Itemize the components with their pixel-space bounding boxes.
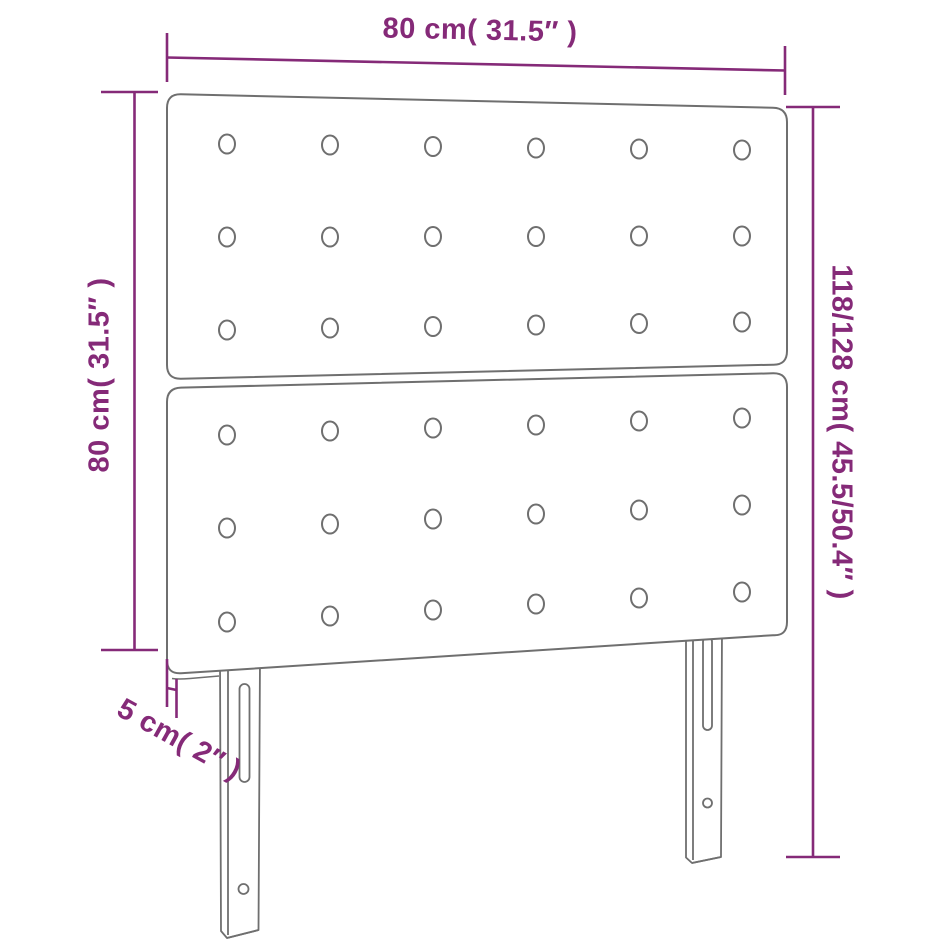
right-leg-hole bbox=[703, 799, 712, 808]
panel-height-dimension-label: 80 cm( 31.5″ ) bbox=[84, 278, 117, 473]
width-dimension-label: 80 cm( 31.5″ ) bbox=[382, 12, 578, 49]
left-leg-hole bbox=[239, 884, 249, 894]
lower-panel bbox=[167, 373, 787, 679]
upper-panel bbox=[167, 94, 787, 378]
headboard-line-drawing bbox=[0, 0, 947, 947]
total-height-dimension-label: 118/128 cm( 45.5/50.4″ ) bbox=[825, 264, 858, 599]
headboard-dimension-diagram: 80 cm( 31.5″ ) 80 cm( 31.5″ ) 118/128 cm… bbox=[0, 0, 947, 947]
left-leg bbox=[220, 657, 260, 938]
right-leg-slot bbox=[703, 637, 712, 730]
right-leg bbox=[686, 629, 722, 863]
